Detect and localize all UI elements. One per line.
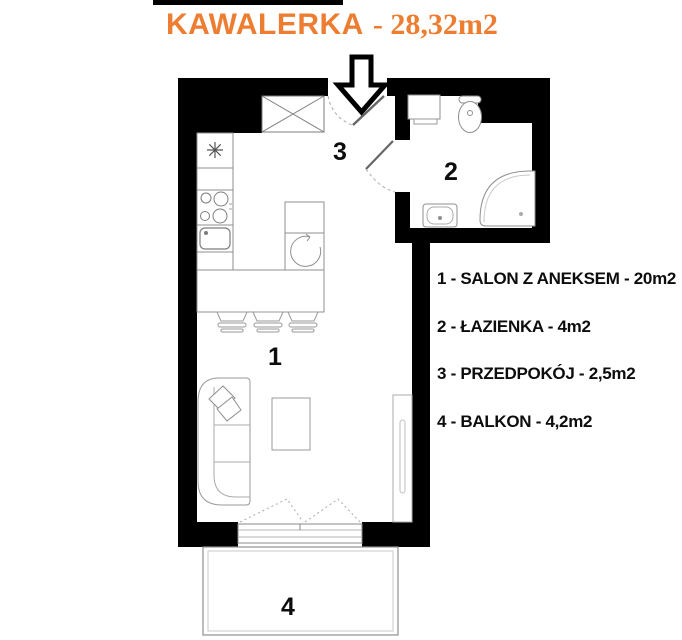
washing-machine [408,95,440,124]
bathroom-door [366,141,395,192]
balcony-door [238,499,362,543]
sofa [198,378,250,505]
top-crop-artifact [153,0,343,5]
wardrobe [262,96,324,132]
room-label-salon: 1 [268,343,282,371]
toilet [459,96,482,133]
kitchen-island [197,270,324,312]
floorplan-page: KAWALERKA- 28,32m2 1 - SALON Z ANEKSEM -… [0,0,682,640]
coffee-table [272,398,310,450]
bar-stools [217,312,318,332]
entrance-arrow-icon [338,57,385,112]
kitchen-sink [200,228,230,249]
shower [480,171,535,226]
room-label-balkon: 4 [281,593,295,621]
floorplan: 1 2 3 4 [0,0,682,640]
burner-star-icon [207,142,223,158]
balcony [203,547,398,635]
radiator [393,395,412,522]
room-label-przedpokoj: 3 [333,138,347,166]
room-label-lazienka: 2 [444,158,458,186]
fridge [285,202,324,270]
bathroom-sink [423,204,457,227]
